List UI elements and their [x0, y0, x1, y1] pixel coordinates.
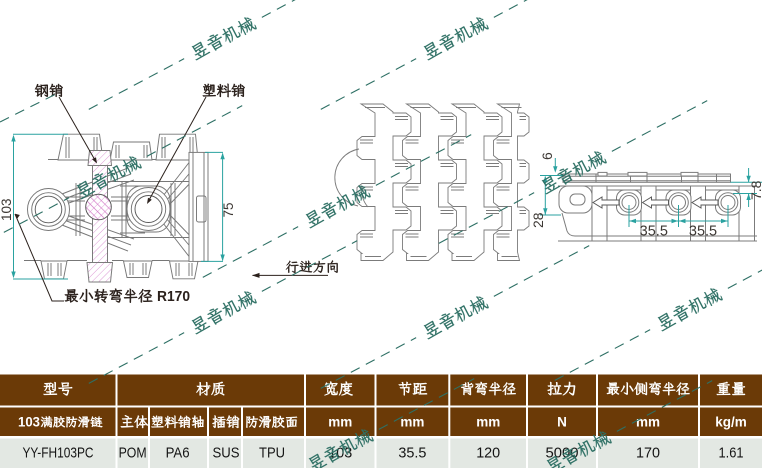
svg-text:7.8: 7.8 — [748, 180, 762, 200]
svg-text:TPU: TPU — [259, 445, 285, 462]
svg-text:mm: mm — [328, 414, 352, 429]
svg-text:PA6: PA6 — [166, 445, 190, 462]
svg-text:103: 103 — [18, 414, 40, 430]
svg-text:R170: R170 — [157, 289, 190, 305]
svg-text:SUS: SUS — [213, 445, 240, 462]
svg-text:103: 103 — [0, 198, 14, 221]
svg-text:mm: mm — [636, 414, 660, 429]
svg-text:kg/m: kg/m — [715, 414, 747, 429]
svg-text:POM: POM — [119, 445, 147, 462]
svg-text:35.5: 35.5 — [398, 445, 426, 462]
svg-text:1.61: 1.61 — [719, 445, 744, 462]
svg-text:170: 170 — [636, 445, 660, 462]
svg-text:YY-FH103PC: YY-FH103PC — [23, 445, 94, 462]
svg-text:mm: mm — [476, 414, 500, 429]
svg-text:28: 28 — [530, 212, 546, 228]
svg-text:35.5: 35.5 — [689, 224, 717, 240]
svg-text:35.5: 35.5 — [640, 224, 668, 240]
svg-text:120: 120 — [476, 445, 500, 462]
svg-text:6: 6 — [539, 152, 555, 160]
svg-text:mm: mm — [400, 414, 424, 429]
svg-text:75: 75 — [221, 202, 236, 217]
svg-text:N: N — [557, 414, 567, 429]
